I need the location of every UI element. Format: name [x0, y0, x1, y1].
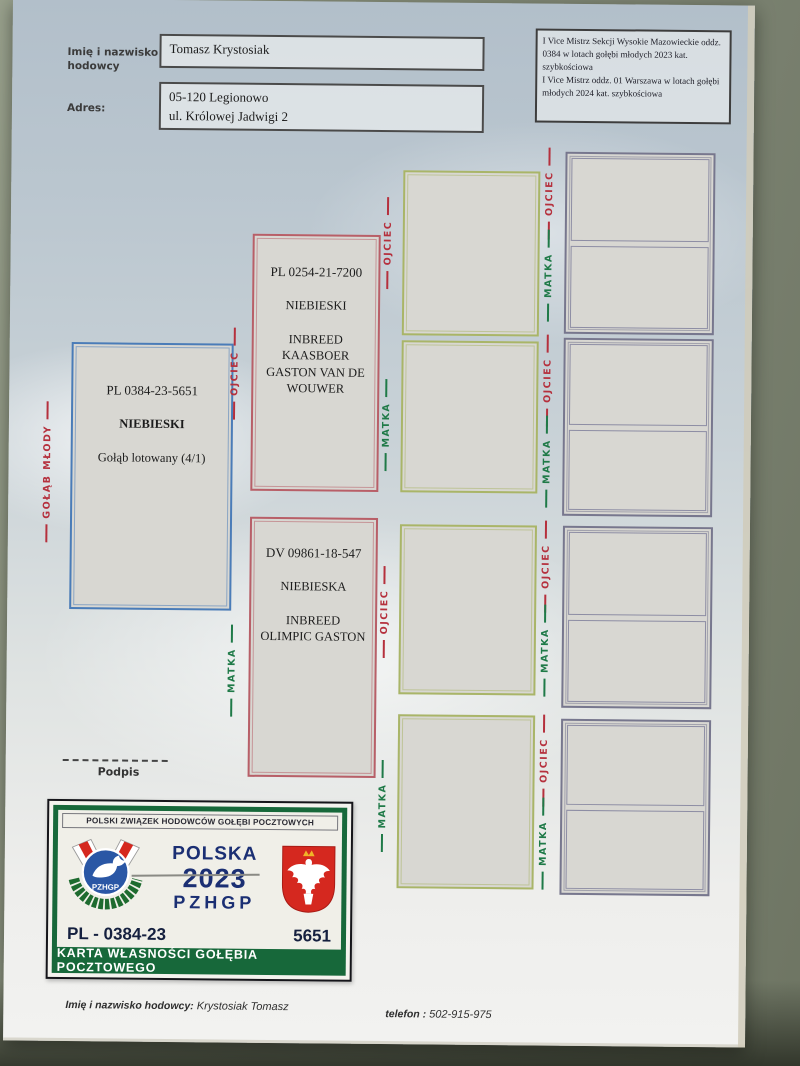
ggp-mother-label-4: MATKA [535, 804, 552, 884]
ggp-mother-label-2: MATKA [538, 422, 555, 502]
card-ring-prefix: PL - 0384-23 [67, 924, 166, 945]
father-strain-4: WOUWER [253, 380, 377, 397]
footer-owner: Imię i nazwisko hodowcy: Krystosiak Toma… [65, 999, 288, 1013]
address-label: Adres: [67, 101, 106, 116]
ggp-cell [571, 158, 710, 242]
footer-owner-value: Krystosiak Tomasz [197, 1000, 289, 1013]
ggp-father-label-2: OJCIEC [539, 341, 556, 421]
grandfather-1-label: OJCIEC [379, 193, 396, 293]
young-pigeon-side-label: GOŁĄB MŁODY [38, 404, 55, 539]
ggp-cell [566, 725, 705, 806]
mother-color: NIEBIESKA [251, 578, 375, 595]
card-title: KARTA WŁASNOŚCI GOŁĘBIA POCZTOWEGO [57, 947, 341, 976]
great-grandparent-box-3 [561, 526, 713, 709]
ggp-cell [570, 245, 709, 329]
pedigree-sheet: Imię i nazwisko hodowcy Tomasz Krystosia… [3, 0, 755, 1048]
card-ring-number: 5651 [293, 926, 331, 946]
great-grandparent-box-2 [562, 338, 714, 517]
father-strain-2: KAASBOER [254, 347, 378, 364]
card-org: PZHGP [149, 892, 279, 914]
footer-owner-label: Imię i nazwisko hodowcy: [65, 999, 193, 1012]
grandparent-box-1 [402, 170, 541, 336]
achievement-1: I Vice Mistrz Sekcji Wysokie Mazowieckie… [542, 35, 724, 76]
pzhgp-dove-logo-icon: PZHGP [61, 831, 150, 924]
owner-name-label: Imię i nazwisko hodowcy [67, 45, 159, 74]
ggp-father-label-4: OJCIEC [535, 721, 552, 801]
father-strain-1: INBREED [254, 331, 378, 348]
young-note: Gołąb lotowany (4/1) [73, 449, 231, 467]
grandmother-2-label: MATKA [374, 756, 391, 856]
great-grandparent-box-4 [559, 719, 711, 896]
ggp-mother-label-1: MATKA [540, 236, 557, 316]
signature-line [63, 759, 168, 762]
ggp-cell [568, 429, 707, 511]
great-grandparent-box-1 [564, 152, 716, 335]
ggp-father-label-3: OJCIEC [537, 527, 554, 607]
signature-label: Podpis [98, 765, 140, 778]
grandparent-box-3 [398, 524, 537, 695]
footer-phone-label: telefon : [385, 1008, 426, 1020]
polish-eagle-emblem-icon [279, 843, 338, 916]
young-color: NIEBIESKI [73, 415, 231, 433]
achievement-2: I Vice Mistrz oddz. 01 Warszawa w lotach… [542, 74, 724, 102]
footer-phone: telefon : 502-915-975 [385, 1008, 491, 1021]
mother-side-label: MATKA [223, 621, 240, 721]
mother-ring-number: DV 09861-18-547 [252, 545, 376, 563]
address-field[interactable]: 05-120 Legionowo ul. Królowej Jadwigi 2 [159, 82, 484, 133]
ggp-cell [565, 809, 704, 890]
ggp-mother-label-3: MATKA [536, 611, 553, 691]
father-side-label: OJCIEC [226, 324, 243, 424]
young-ring-number: PL 0384-23-5651 [73, 382, 231, 400]
grandparent-box-2 [400, 340, 538, 493]
achievements-box: I Vice Mistrz Sekcji Wysokie Mazowieckie… [535, 28, 732, 124]
father-strain-3: GASTON VAN DE [253, 363, 377, 380]
owner-name-field[interactable]: Tomasz Krystosiak [159, 34, 484, 71]
ggp-father-label-1: OJCIEC [541, 154, 558, 234]
address-line-2: ul. Królowej Jadwigi 2 [169, 107, 474, 129]
grandfather-2-label: OJCIEC [376, 562, 393, 662]
mother-box: DV 09861-18-547 NIEBIESKA INBREED OLIMPI… [248, 517, 378, 778]
logo-text: PZHGP [92, 883, 119, 892]
young-pigeon-box: PL 0384-23-5651 NIEBIESKI Gołąb lotowany… [69, 342, 234, 611]
owner-name-value: Tomasz Krystosiak [169, 41, 269, 57]
father-ring-number: PL 0254-21-7200 [254, 264, 378, 282]
card-brand: POLSKA 2023 PZHGP [149, 843, 280, 914]
ggp-cell [568, 532, 707, 616]
grandparent-box-4 [396, 714, 535, 889]
father-color: NIEBIESKI [254, 297, 378, 314]
grandmother-1-label: MATKA [377, 375, 394, 475]
footer-phone-value: 502-915-975 [429, 1009, 492, 1022]
ggp-cell [569, 344, 708, 426]
mother-strain-1: INBREED [251, 612, 375, 629]
mother-strain-2: OLIMPIC GASTON [251, 628, 375, 645]
card-year: 2023 [149, 865, 279, 893]
photo-of-pedigree-card: Imię i nazwisko hodowcy Tomasz Krystosia… [0, 0, 800, 1066]
ggp-cell [567, 619, 706, 703]
ownership-card: POLSKI ZWIĄZEK HODOWCÓW GOŁĘBI POCZTOWYC… [46, 799, 354, 982]
father-box: PL 0254-21-7200 NIEBIESKI INBREED KAASBO… [250, 234, 380, 492]
